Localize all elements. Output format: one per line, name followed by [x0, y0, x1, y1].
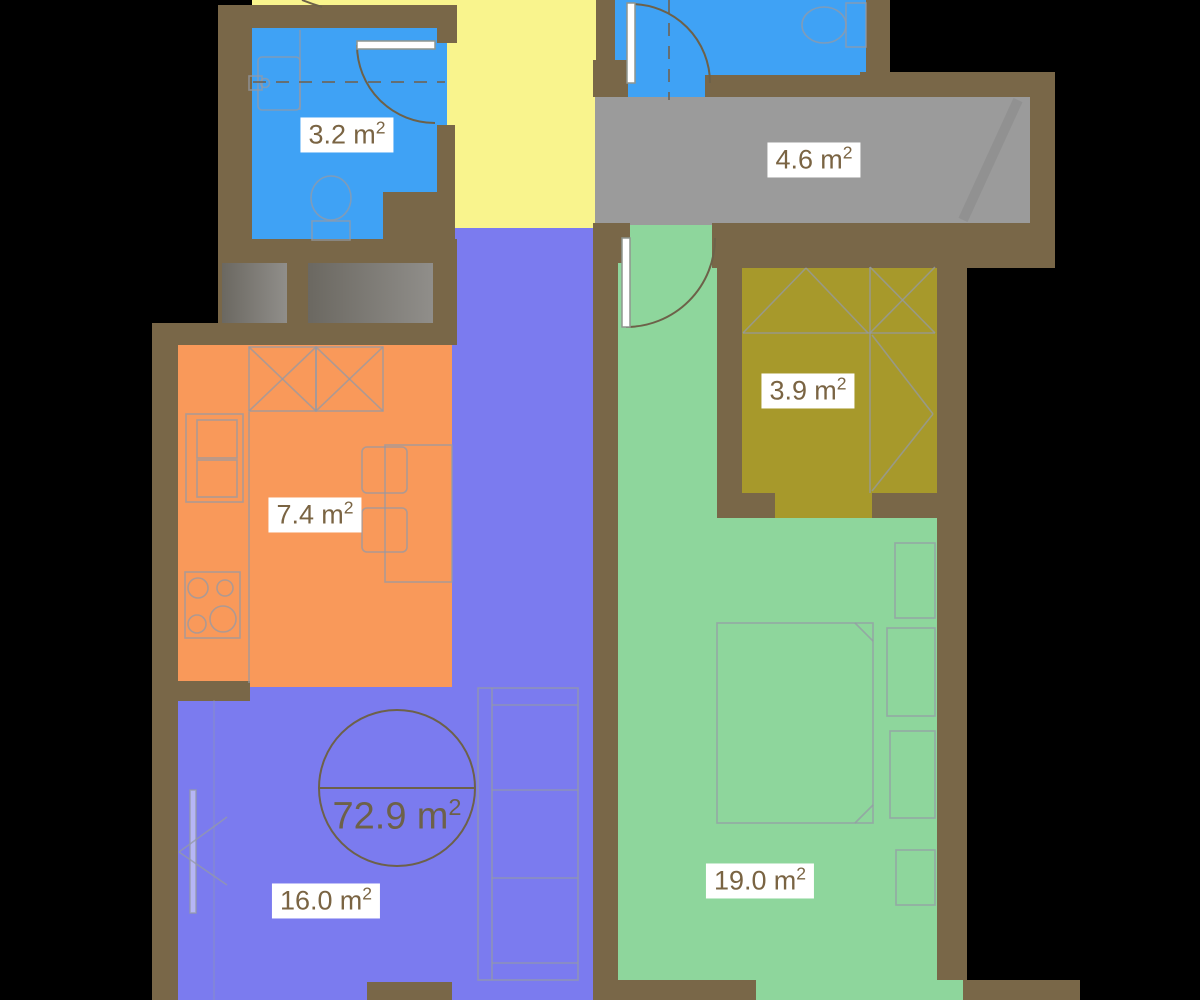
wall-segment	[593, 223, 618, 1000]
area-label-bathroom-top-left: 3.2m2	[300, 117, 393, 152]
wall-segment	[860, 72, 1055, 97]
wall-segment	[152, 323, 178, 1000]
area-label-kitchen: 7.4m2	[268, 497, 361, 532]
wall-segment	[937, 267, 967, 980]
wall-segment	[593, 223, 630, 263]
wall-segment	[593, 980, 756, 1000]
room-living-room	[178, 687, 593, 1000]
wall-segment	[218, 5, 457, 28]
ventilation-shaft	[222, 263, 287, 323]
area-label-corridor: 4.6m2	[767, 142, 860, 177]
total-area-label: 72.9m2	[333, 796, 462, 839]
wall-segment	[596, 0, 615, 60]
wall-segment	[717, 493, 775, 518]
room-bedroom	[756, 980, 963, 1000]
room-bathroom-top-right	[615, 0, 866, 75]
wall-segment	[963, 980, 1080, 1000]
wall-segment	[367, 982, 452, 1000]
wall-segment	[712, 223, 1055, 268]
wall-segment	[383, 192, 455, 240]
wall-segment	[152, 681, 250, 701]
floor-plan: 3.2m2 4.6m2 3.9m2 7.4m2 16.0m2 19.0m2 72…	[0, 0, 1200, 1000]
wall-segment	[717, 230, 742, 518]
ventilation-shaft	[308, 263, 433, 323]
area-label-bedroom: 19.0m2	[706, 863, 814, 898]
area-label-living-room: 16.0m2	[272, 883, 380, 918]
wall-segment	[437, 10, 457, 43]
room-bathroom-top-right	[627, 75, 705, 97]
wall-segment	[152, 323, 457, 345]
area-label-wardrobe: 3.9m2	[761, 373, 854, 408]
wall-segment	[705, 75, 866, 97]
wall-segment	[593, 60, 628, 97]
wall-segment	[872, 493, 937, 518]
wall-segment	[218, 5, 252, 263]
